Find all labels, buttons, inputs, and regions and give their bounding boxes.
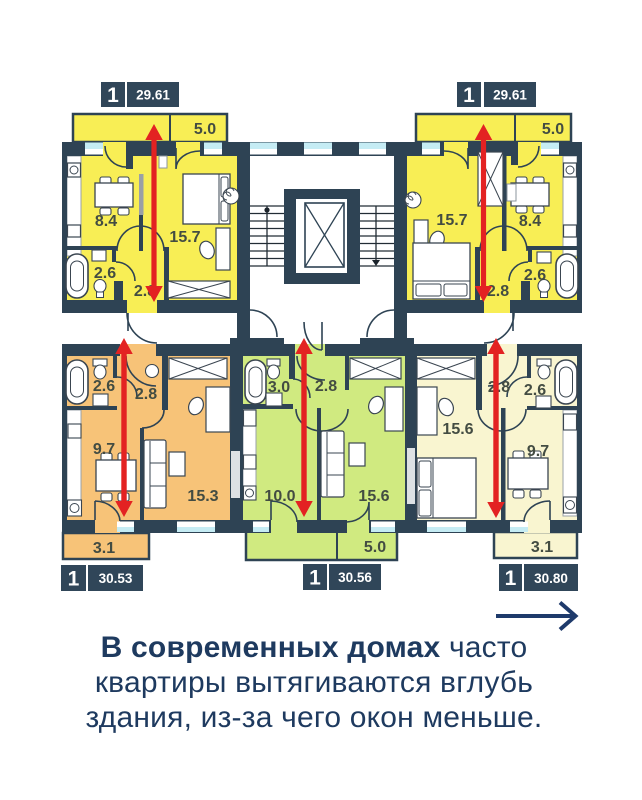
svg-text:2.6: 2.6 — [524, 382, 546, 399]
svg-text:9.7: 9.7 — [527, 443, 549, 460]
svg-text:1: 1 — [505, 567, 517, 590]
svg-text:8.4: 8.4 — [95, 213, 117, 230]
svg-text:3.0: 3.0 — [268, 379, 290, 396]
svg-text:1: 1 — [463, 84, 475, 107]
svg-text:2.6: 2.6 — [93, 378, 115, 395]
svg-text:2.8: 2.8 — [135, 386, 157, 403]
svg-text:9.7: 9.7 — [93, 441, 115, 458]
svg-text:3.1: 3.1 — [531, 539, 553, 556]
svg-text:5.0: 5.0 — [542, 121, 564, 138]
svg-text:2.6: 2.6 — [524, 267, 546, 284]
svg-text:30.53: 30.53 — [99, 571, 133, 586]
svg-text:1: 1 — [107, 84, 119, 107]
svg-text:1: 1 — [309, 567, 321, 590]
svg-text:10.0: 10.0 — [264, 488, 295, 505]
svg-text:15.6: 15.6 — [442, 421, 473, 438]
svg-text:15.7: 15.7 — [436, 212, 467, 229]
svg-text:2.8: 2.8 — [315, 378, 337, 395]
svg-text:5.0: 5.0 — [194, 121, 216, 138]
svg-text:1: 1 — [68, 568, 80, 591]
svg-text:30.80: 30.80 — [534, 571, 568, 586]
svg-text:2.6: 2.6 — [94, 265, 116, 282]
svg-text:8.4: 8.4 — [519, 213, 541, 230]
svg-text:15.6: 15.6 — [358, 488, 389, 505]
svg-text:15.7: 15.7 — [169, 229, 200, 246]
svg-text:3.1: 3.1 — [93, 540, 115, 557]
svg-text:2.8: 2.8 — [488, 379, 510, 396]
svg-text:30.56: 30.56 — [338, 570, 372, 585]
svg-text:29.61: 29.61 — [136, 88, 170, 103]
svg-text:2.8: 2.8 — [487, 283, 509, 300]
svg-text:15.3: 15.3 — [187, 488, 218, 505]
svg-text:5.0: 5.0 — [364, 539, 386, 556]
svg-text:29.61: 29.61 — [493, 88, 527, 103]
